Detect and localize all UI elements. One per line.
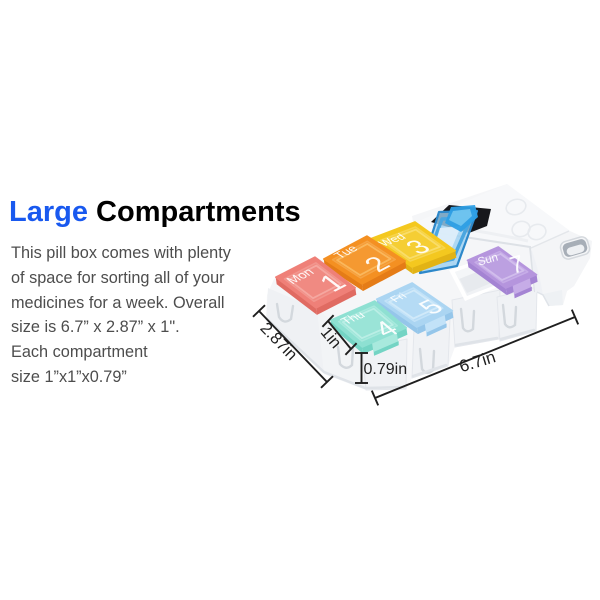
svg-text:6.7in: 6.7in: [457, 347, 498, 376]
svg-text:0.79in: 0.79in: [364, 361, 408, 378]
